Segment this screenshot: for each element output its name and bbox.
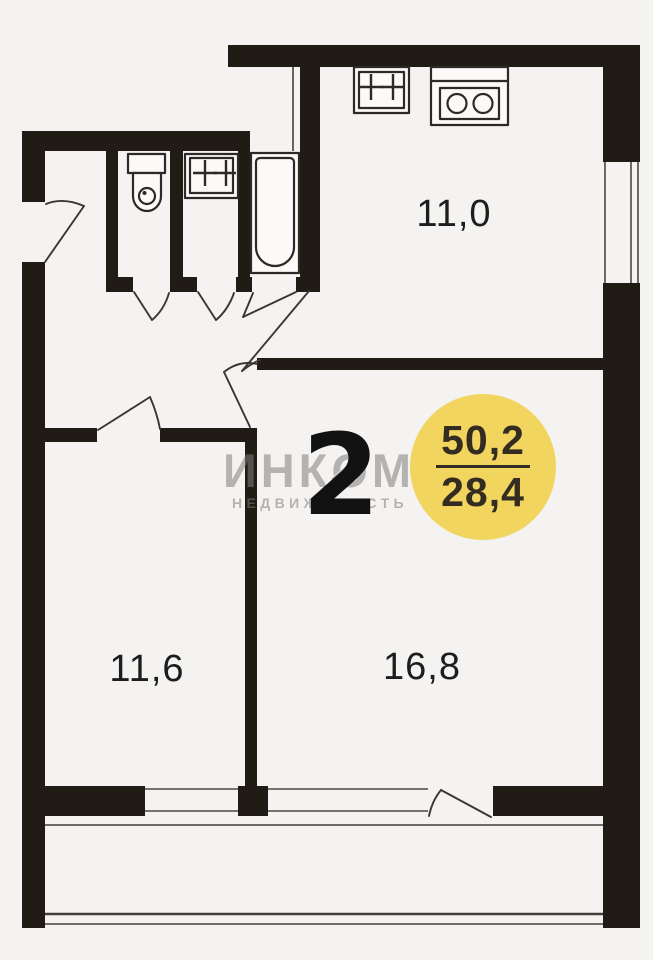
- living-window: [268, 787, 428, 815]
- stove-icon: [431, 67, 508, 125]
- washroom-door-swing: [198, 292, 234, 320]
- wall-bottom-left: [45, 786, 145, 816]
- windows: [145, 162, 640, 815]
- living-area: 28,4: [441, 472, 525, 514]
- kitchen-sink-icon: [354, 67, 409, 113]
- area-badge: 50,2 28,4: [410, 394, 556, 540]
- wall-wet-stub-2: [170, 277, 197, 292]
- wall-kitchen-left: [300, 45, 320, 291]
- badge-divider: [436, 465, 530, 468]
- wall-bottom-right: [493, 786, 603, 816]
- wall-bottom-stub: [238, 786, 268, 816]
- wall-wet-stub-3: [236, 277, 252, 292]
- bedroom-area-label: 11,6: [87, 648, 207, 691]
- wall-bedroom-top-a: [45, 428, 97, 442]
- wall-bedroom-top-b: [160, 428, 257, 442]
- wall-living-top: [257, 358, 603, 370]
- washbasin-icon: [185, 154, 238, 198]
- wc-door-swing: [134, 292, 169, 320]
- wall-sink-bath: [238, 151, 250, 277]
- balcony: [45, 825, 603, 924]
- wall-wet-stub-4: [296, 277, 320, 292]
- room-count: 2: [296, 420, 386, 532]
- kitchen-area-label: 11,0: [394, 193, 514, 236]
- wall-wc-sink: [170, 151, 183, 277]
- kitchen-window: [603, 162, 640, 283]
- bathtub-icon: [251, 153, 299, 273]
- bathroom-door-swing: [243, 292, 296, 317]
- wall-top: [228, 45, 640, 67]
- wall-wc-left: [106, 151, 118, 277]
- living-door-swing: [224, 363, 257, 427]
- bedroom-door-swing: [98, 397, 160, 430]
- wall-left-main: [22, 262, 45, 928]
- living-room-area-label: 16,8: [362, 646, 482, 689]
- floorplan-page: ИНКОМ НЕДВИЖИМОСТЬ 2 50,2 28,4 11,0 11,6…: [0, 0, 653, 960]
- total-area: 50,2: [441, 420, 525, 462]
- wall-right-upper: [603, 45, 640, 162]
- bedroom-window: [145, 787, 238, 815]
- entrance-door-swing: [45, 201, 84, 262]
- wall-wet-stub-1: [106, 277, 133, 292]
- wall-right-lower: [603, 283, 640, 928]
- wall-room-divider: [245, 428, 257, 786]
- toilet-icon: [128, 154, 165, 211]
- wall-bath-block-top: [22, 131, 250, 151]
